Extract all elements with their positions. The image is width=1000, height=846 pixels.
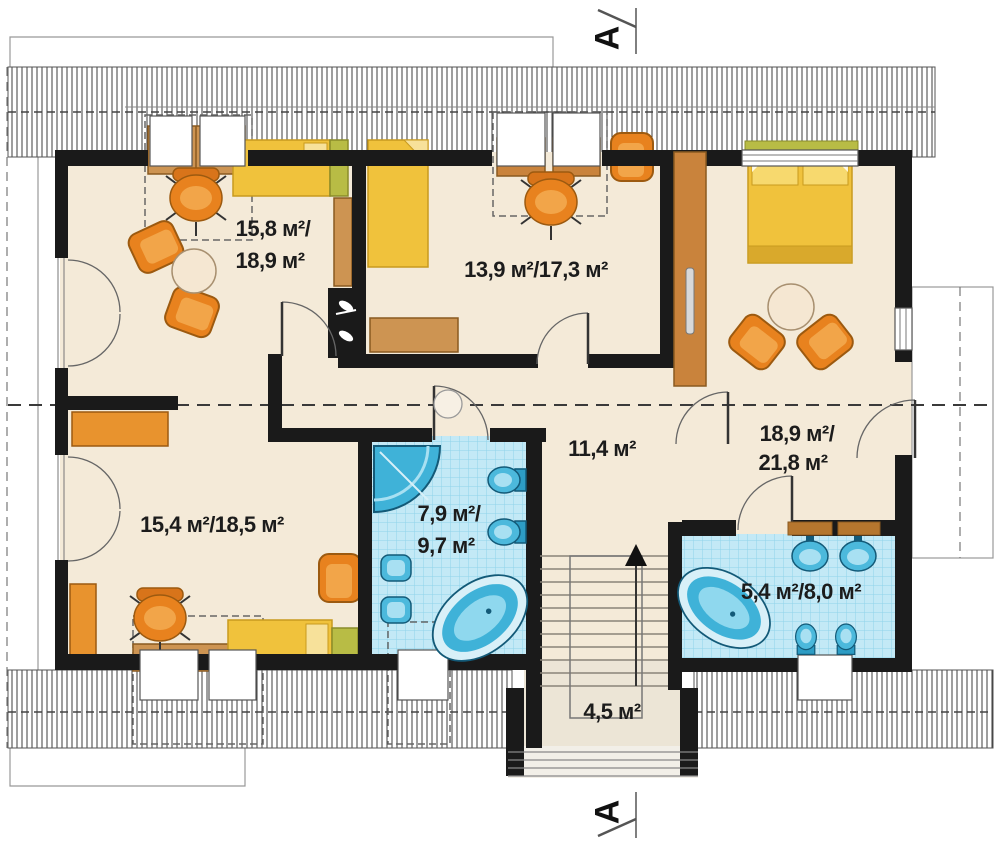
label-bedroom-top-right-1: 18,9 м²/ <box>760 421 835 447</box>
label-bedroom-bottom-left: 15,4 м²/18,5 м² <box>140 512 284 538</box>
label-bedroom-top-right-2: 21,8 м² <box>758 450 827 476</box>
label-bathroom-small: 5,4 м²/8,0 м² <box>741 579 861 605</box>
floor-plan-drawing <box>0 0 1000 846</box>
balcony <box>912 287 993 558</box>
sliding-door-panel <box>674 152 706 386</box>
label-staircase: 4,5 м² <box>583 699 640 725</box>
section-marker-top: A <box>589 26 628 51</box>
section-marker-bottom: A <box>589 800 628 825</box>
label-hall: 11,4 м² <box>568 436 636 462</box>
label-bedroom-top-left-1: 15,8 м²/ <box>236 216 311 242</box>
corridor-washbasin <box>434 390 462 418</box>
label-bedroom-top-middle: 13,9 м²/17,3 м² <box>464 257 608 283</box>
label-bedroom-top-left-2: 18,9 м² <box>235 248 304 274</box>
floor-plan: 15,8 м²/ 18,9 м² 13,9 м²/17,3 м² 18,9 м²… <box>0 0 1000 846</box>
label-bathroom-main-1: 7,9 м²/ <box>418 501 481 527</box>
label-bathroom-main-2: 9,7 м² <box>417 533 474 559</box>
